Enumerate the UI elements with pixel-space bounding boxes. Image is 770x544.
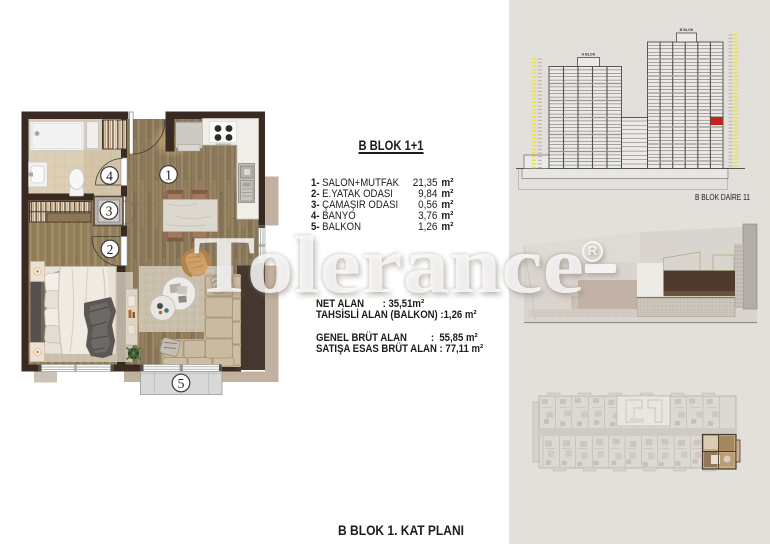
svg-text:1: 1 — [165, 167, 172, 182]
svg-text:B BLOK DAİRE 11: B BLOK DAİRE 11 — [695, 192, 750, 202]
svg-text:A BLOK: A BLOK — [582, 53, 596, 57]
svg-text:2: 2 — [107, 242, 114, 257]
svg-text:B BLOK: B BLOK — [680, 28, 694, 32]
svg-text:5: 5 — [178, 376, 185, 391]
svg-text:3: 3 — [106, 203, 113, 218]
svg-text:4: 4 — [106, 168, 113, 183]
